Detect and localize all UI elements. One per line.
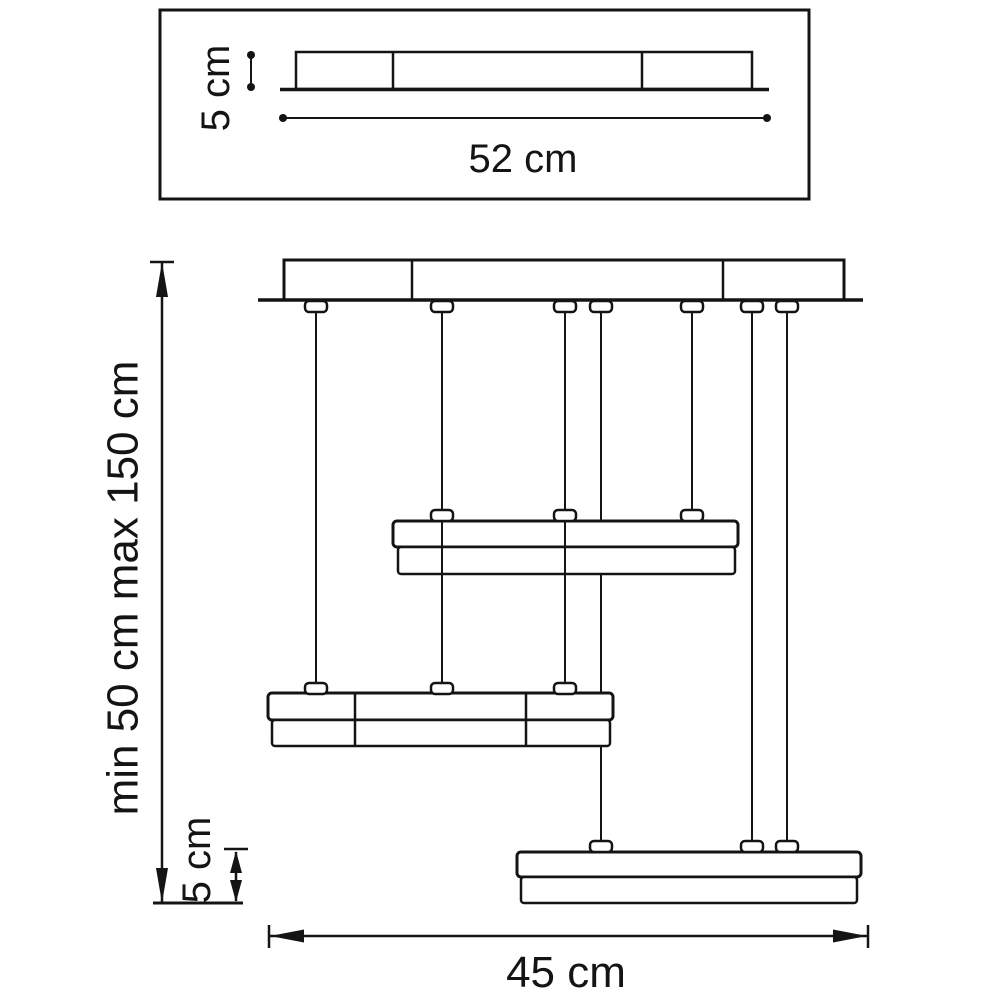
suspension-height-dimension xyxy=(150,262,243,903)
bottom-light-bar xyxy=(517,852,861,903)
canopy-height-label: 5 cm xyxy=(194,45,238,132)
suspension-wires xyxy=(316,312,787,842)
top-view-panel: 5 cm 52 cm xyxy=(160,10,809,199)
shade-height-dimension xyxy=(224,849,248,902)
canopy-height-dimension xyxy=(247,51,255,91)
canopy-plate-top-view xyxy=(280,52,769,90)
arrow-left xyxy=(270,930,304,943)
dimension-dot xyxy=(247,83,255,91)
lamp-dimension-diagram: 5 cm 52 cm xyxy=(0,0,1000,1000)
diagram-canvas: 5 cm 52 cm xyxy=(0,0,1000,1000)
arrow-down xyxy=(156,868,168,903)
fixture-width-dimension xyxy=(269,925,868,948)
arrow-right xyxy=(833,930,867,943)
shade-height-label: 5 cm xyxy=(175,817,219,904)
fixture-width-label: 45 cm xyxy=(506,948,626,997)
dimension-dot xyxy=(763,114,771,122)
dimension-dot xyxy=(247,51,255,59)
ceiling-canopy xyxy=(258,260,863,300)
wire-connectors xyxy=(305,301,798,852)
canopy-length-dimension xyxy=(279,114,771,122)
arrow-down xyxy=(230,880,242,902)
suspension-height-label: min 50 cm max 150 cm xyxy=(99,361,148,816)
dimension-dot xyxy=(279,114,287,122)
arrow-up xyxy=(230,851,242,873)
left-light-bar xyxy=(268,693,613,746)
canopy-length-label: 52 cm xyxy=(469,137,578,181)
front-view: min 50 cm max 150 cm 5 cm 45 cm xyxy=(99,260,869,997)
arrow-up xyxy=(156,262,168,297)
